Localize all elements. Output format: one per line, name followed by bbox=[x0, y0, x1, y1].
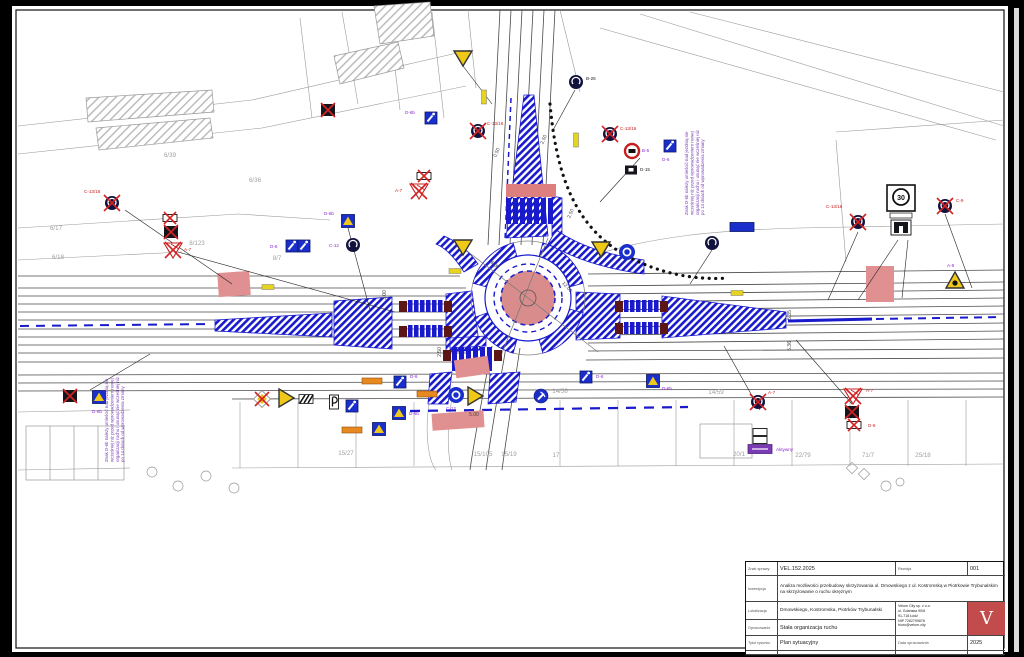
traffic-sign-black-plate-removed bbox=[63, 389, 77, 403]
parcel-number: 15/27 bbox=[338, 450, 354, 457]
sign-label: A-7 bbox=[866, 388, 874, 393]
title-block-label: Tytuł rysunku bbox=[746, 636, 778, 651]
traffic-sign-striped bbox=[299, 395, 313, 404]
sign-label: Aktywny bbox=[776, 447, 794, 452]
sign-label: C-12 bbox=[446, 406, 456, 411]
sign-label: D-6 bbox=[868, 423, 876, 428]
parcel-number: 6/17 bbox=[50, 225, 63, 232]
traffic-sign-bluesq bbox=[664, 140, 676, 152]
traffic-sign-circle-removed bbox=[937, 198, 953, 214]
traffic-sign-c12 bbox=[448, 387, 464, 403]
parcel-number: 25/18 bbox=[915, 452, 931, 459]
traffic-sign-diamond-removed bbox=[254, 391, 271, 408]
parcel-number: 8/123 bbox=[189, 240, 205, 247]
traffic-sign-black-plate-removed bbox=[321, 103, 335, 117]
note-text: Znak D-6b należy umieścić nad jezdnią ni… bbox=[684, 130, 705, 215]
traffic-sign-ybar bbox=[262, 285, 274, 290]
parcel-number: 15/105 bbox=[474, 451, 493, 458]
traffic-sign-circle-removed bbox=[104, 195, 120, 211]
sign-label: B-26 bbox=[586, 76, 596, 81]
parcel-number: 6/18 bbox=[52, 254, 65, 261]
traffic-sign-bluesq bbox=[394, 376, 406, 388]
traffic-sign-p-plate bbox=[330, 395, 339, 409]
traffic-sign-navy bbox=[705, 236, 719, 250]
traffic-sign-bluesq bbox=[346, 400, 358, 412]
traffic-sign-circle-removed bbox=[602, 126, 618, 142]
dimension-label: 2.50 bbox=[437, 347, 443, 357]
dimension-label: 3.00 bbox=[382, 290, 388, 300]
sign-label: D-6b bbox=[92, 409, 102, 414]
traffic-sign-c9 bbox=[534, 389, 548, 403]
sign-label: C-13/16 bbox=[487, 121, 504, 126]
svg-text:30: 30 bbox=[897, 195, 905, 202]
traffic-sign-c12 bbox=[619, 244, 635, 260]
traffic-sign-orange-bar bbox=[417, 391, 437, 397]
traffic-sign-navy bbox=[346, 238, 360, 252]
location: Dmowskiego, Kostromska, Piotrków Trybuna… bbox=[778, 602, 896, 620]
sign-label: D-6b bbox=[324, 211, 334, 216]
sign-label: D-6b bbox=[405, 110, 415, 115]
sign-label: A-7 bbox=[395, 188, 403, 193]
traffic-sign-black-plate-removed bbox=[845, 405, 859, 419]
title-block-label: Lokalizacja bbox=[746, 602, 778, 620]
parcel-number: 20/1 bbox=[733, 451, 746, 458]
traffic-sign-circle-removed bbox=[850, 214, 866, 230]
sign-label: D-6b bbox=[662, 386, 672, 391]
parcel-number: 8/7 bbox=[273, 255, 282, 262]
traffic-sign-bluesq bbox=[286, 240, 298, 252]
traffic-sign-ybar-v bbox=[482, 90, 487, 104]
parcel-number: 14/59 bbox=[708, 389, 724, 396]
dimension-label: 5.35 bbox=[787, 310, 793, 320]
traffic-sign-plate bbox=[753, 429, 767, 436]
sign-label: C-9 bbox=[956, 198, 964, 203]
parcel-number: 14/56 bbox=[552, 388, 568, 395]
traffic-sign-orange-bar bbox=[342, 427, 362, 433]
traffic-sign-plate bbox=[753, 437, 767, 444]
company-info: Velum City sp. z o.o. ul. Gdańska 90/8 9… bbox=[896, 602, 968, 636]
traffic-sign-red-circle bbox=[625, 144, 639, 158]
revision-number: 001 bbox=[968, 562, 1005, 576]
traffic-sign-bluesq-tri bbox=[647, 375, 660, 388]
study-type: Stała organizacja ruchu bbox=[778, 620, 896, 636]
parcel-number: 6/36 bbox=[249, 177, 262, 184]
title-block-label: Inwestycja bbox=[746, 576, 778, 602]
sign-label: D-6 bbox=[662, 157, 670, 162]
sign-label: D-6 bbox=[410, 374, 418, 379]
traffic-sign-orange-bar bbox=[362, 378, 382, 384]
traffic-sign-circle-removed bbox=[750, 394, 766, 410]
study-date: 2025 bbox=[968, 636, 1005, 651]
sign-label: C-13/16 bbox=[826, 204, 843, 209]
case-number: VEL.152.2025 bbox=[778, 562, 896, 576]
sign-label: A-7 bbox=[768, 390, 776, 395]
note-text: Znak D-6b należy umieścić nad jezdnią ni… bbox=[104, 377, 125, 462]
traffic-sign-bluesq-tri bbox=[393, 407, 406, 420]
parcel-number: 6/39 bbox=[164, 152, 177, 159]
traffic-sign-bluesq bbox=[580, 371, 592, 383]
traffic-sign-bluesq bbox=[298, 240, 310, 252]
traffic-sign-bluesq-tri bbox=[342, 215, 355, 228]
sign-label: D-15 bbox=[640, 167, 650, 172]
sign-label: D-6 bbox=[596, 374, 604, 379]
traffic-sign-navy bbox=[569, 75, 583, 89]
sign-label: A-7 bbox=[184, 247, 192, 252]
traffic-sign-black-plate bbox=[625, 166, 637, 175]
title-block-label: Znak sprawy bbox=[746, 562, 778, 576]
sign-label: C-13/16 bbox=[620, 126, 637, 131]
traffic-sign-zone30: 30 bbox=[887, 185, 915, 235]
title-block-label: Data opracowania bbox=[896, 636, 968, 651]
title-block: Znak sprawy VEL.152.2025 Rewizja 001 Inw… bbox=[745, 561, 1004, 656]
investment-description: Analiza możliwości przebudowy skrzyżowan… bbox=[778, 576, 1005, 602]
sign-label: C-12 bbox=[329, 243, 339, 248]
sign-label: A-8 bbox=[947, 263, 955, 268]
traffic-sign-circle-removed bbox=[470, 123, 486, 139]
traffic-sign-bluesq bbox=[425, 112, 437, 124]
sign-label: D-6b bbox=[409, 411, 419, 416]
traffic-sign-blue-rect bbox=[730, 223, 754, 232]
dimension-label: 5.00 bbox=[469, 412, 479, 418]
crosswalk-top bbox=[506, 198, 553, 224]
traffic-sign-black-plate-removed bbox=[164, 225, 178, 239]
page-edge-sliver bbox=[1014, 8, 1019, 652]
sign-label: B-5 bbox=[642, 148, 650, 153]
traffic-sign-ybar-v bbox=[574, 133, 579, 147]
parcel-number: 22/79 bbox=[795, 452, 811, 459]
traffic-sign-ybar bbox=[449, 269, 461, 274]
traffic-sign-bluesq-tri bbox=[373, 423, 386, 436]
parcel-number: 15/19 bbox=[501, 451, 517, 458]
sign-label: D-6 bbox=[270, 244, 278, 249]
drawing-title: Plan sytuacyjny bbox=[778, 636, 896, 651]
dimension-label: 5.36 bbox=[787, 341, 793, 351]
traffic-sign-ybar bbox=[731, 291, 743, 296]
site-plan-drawing: C-13/16A-7D-6bC-12D-6A-7D-6bC-13/16B-26C… bbox=[0, 0, 1024, 657]
drawing-sheet: C-13/16A-7D-6bC-12D-6A-7D-6bC-13/16B-26C… bbox=[0, 0, 1024, 657]
parcel-number: 71/7 bbox=[862, 452, 875, 459]
company-logo: V bbox=[968, 602, 1005, 636]
traffic-sign-purple-rect bbox=[748, 445, 772, 454]
title-block-label: Opracowanie bbox=[746, 620, 778, 636]
title-block-label: Rewizja bbox=[896, 562, 968, 576]
sign-label: C-13/16 bbox=[84, 189, 101, 194]
parcel-number: 17 bbox=[553, 452, 560, 459]
